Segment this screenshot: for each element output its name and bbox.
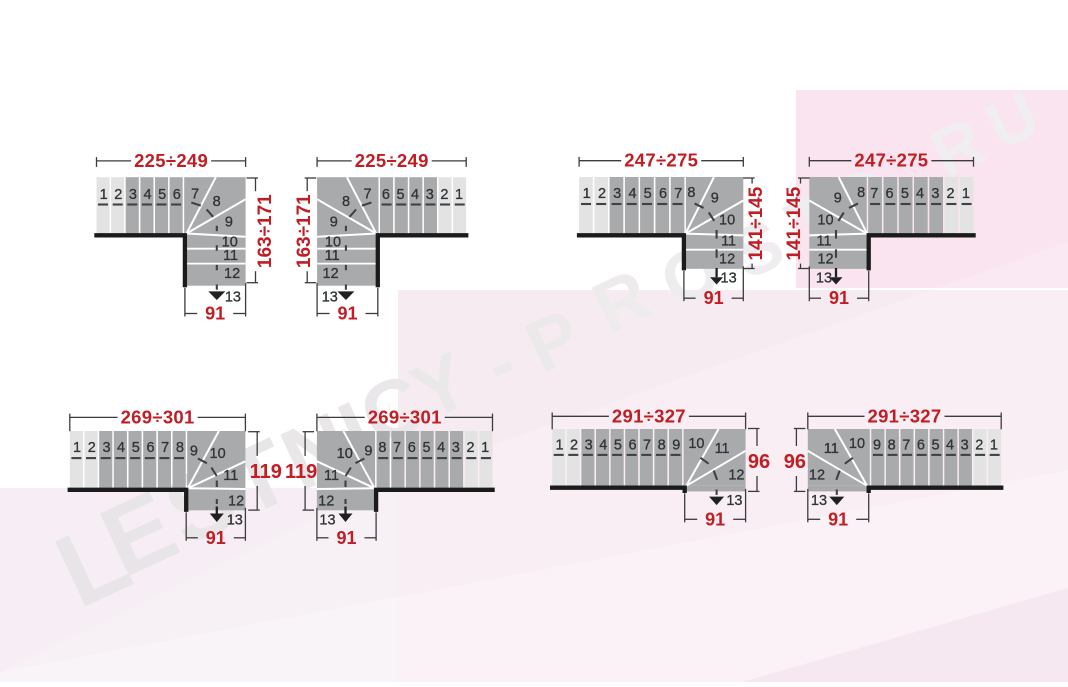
svg-text:6: 6 — [408, 440, 416, 456]
svg-text:12: 12 — [318, 493, 334, 509]
svg-text:8: 8 — [888, 438, 896, 454]
svg-text:4: 4 — [916, 186, 924, 202]
svg-text:7: 7 — [643, 438, 651, 454]
svg-text:7: 7 — [393, 440, 401, 456]
svg-text:6: 6 — [917, 438, 925, 454]
svg-text:13: 13 — [225, 290, 241, 306]
svg-text:12: 12 — [323, 266, 339, 282]
svg-text:3: 3 — [452, 440, 460, 456]
svg-text:12: 12 — [228, 493, 244, 509]
svg-text:2: 2 — [440, 187, 448, 203]
svg-text:141÷145: 141÷145 — [746, 186, 767, 260]
svg-text:225÷249: 225÷249 — [355, 150, 429, 171]
svg-text:91: 91 — [337, 304, 357, 324]
svg-text:6: 6 — [173, 187, 181, 203]
svg-text:1: 1 — [73, 440, 81, 456]
svg-text:9: 9 — [711, 191, 719, 207]
svg-text:10: 10 — [337, 446, 353, 462]
svg-text:7: 7 — [161, 440, 169, 456]
svg-text:11: 11 — [223, 468, 238, 484]
svg-text:4: 4 — [437, 440, 445, 456]
svg-text:269÷301: 269÷301 — [121, 406, 195, 427]
svg-text:5: 5 — [132, 440, 140, 456]
svg-text:13: 13 — [816, 271, 832, 287]
svg-text:247÷275: 247÷275 — [624, 150, 698, 171]
svg-text:1: 1 — [583, 186, 591, 202]
svg-text:12: 12 — [719, 252, 735, 268]
svg-text:6: 6 — [382, 187, 390, 203]
svg-text:91: 91 — [336, 528, 356, 548]
svg-text:13: 13 — [319, 513, 335, 529]
svg-text:1: 1 — [455, 187, 463, 203]
svg-text:4: 4 — [411, 187, 419, 203]
svg-text:5: 5 — [614, 438, 622, 454]
svg-text:9: 9 — [190, 443, 198, 459]
svg-text:13: 13 — [726, 493, 742, 509]
svg-text:11: 11 — [824, 441, 839, 457]
svg-text:7: 7 — [870, 186, 878, 202]
svg-text:9: 9 — [225, 215, 233, 231]
svg-text:7: 7 — [191, 186, 199, 202]
svg-text:10: 10 — [719, 213, 735, 229]
svg-text:163÷171: 163÷171 — [294, 194, 315, 268]
svg-text:119: 119 — [285, 461, 317, 483]
svg-text:91: 91 — [704, 288, 724, 308]
svg-text:163÷171: 163÷171 — [255, 194, 276, 268]
svg-text:247÷275: 247÷275 — [854, 150, 928, 171]
svg-text:5: 5 — [644, 186, 652, 202]
svg-text:1: 1 — [100, 187, 108, 203]
svg-text:11: 11 — [324, 468, 339, 484]
svg-text:1: 1 — [962, 186, 970, 202]
svg-text:4: 4 — [946, 438, 954, 454]
svg-text:9: 9 — [364, 443, 372, 459]
svg-text:11: 11 — [721, 233, 736, 249]
svg-text:91: 91 — [705, 509, 725, 529]
svg-text:2: 2 — [598, 186, 606, 202]
svg-text:96: 96 — [748, 451, 770, 473]
svg-text:3: 3 — [585, 438, 593, 454]
svg-text:4: 4 — [144, 187, 152, 203]
svg-text:96: 96 — [784, 451, 806, 473]
svg-text:2: 2 — [88, 440, 96, 456]
svg-text:291÷327: 291÷327 — [868, 405, 942, 426]
svg-text:12: 12 — [809, 468, 825, 484]
svg-text:5: 5 — [422, 440, 430, 456]
svg-text:10: 10 — [817, 213, 833, 229]
svg-text:91: 91 — [206, 528, 226, 548]
svg-text:13: 13 — [721, 271, 737, 287]
svg-text:9: 9 — [873, 438, 881, 454]
svg-text:291÷327: 291÷327 — [612, 405, 686, 426]
svg-text:13: 13 — [227, 513, 243, 529]
svg-text:2: 2 — [947, 186, 955, 202]
svg-text:119: 119 — [250, 461, 282, 483]
svg-text:141÷145: 141÷145 — [784, 186, 805, 260]
svg-text:3: 3 — [129, 187, 137, 203]
svg-text:6: 6 — [886, 186, 894, 202]
svg-text:10: 10 — [210, 446, 226, 462]
svg-text:2: 2 — [975, 438, 983, 454]
svg-text:3: 3 — [931, 186, 939, 202]
svg-text:8: 8 — [857, 185, 865, 201]
svg-text:9: 9 — [672, 438, 680, 454]
svg-text:9: 9 — [834, 191, 842, 207]
svg-text:8: 8 — [378, 440, 386, 456]
svg-text:8: 8 — [342, 194, 350, 210]
svg-text:6: 6 — [659, 186, 667, 202]
svg-text:1: 1 — [555, 438, 563, 454]
svg-text:91: 91 — [829, 288, 849, 308]
svg-text:13: 13 — [322, 290, 338, 306]
svg-text:9: 9 — [330, 215, 338, 231]
svg-text:7: 7 — [363, 186, 371, 202]
svg-text:12: 12 — [728, 468, 744, 484]
svg-text:4: 4 — [599, 438, 607, 454]
svg-text:2: 2 — [466, 440, 474, 456]
svg-text:7: 7 — [674, 186, 682, 202]
svg-text:1: 1 — [990, 438, 998, 454]
svg-text:12: 12 — [224, 266, 240, 282]
svg-text:225÷249: 225÷249 — [134, 150, 208, 171]
svg-text:8: 8 — [176, 440, 184, 456]
svg-text:11: 11 — [223, 248, 238, 264]
svg-text:12: 12 — [817, 252, 833, 268]
svg-text:4: 4 — [628, 186, 636, 202]
svg-text:269÷301: 269÷301 — [368, 406, 442, 427]
svg-text:11: 11 — [816, 233, 831, 249]
svg-text:5: 5 — [158, 187, 166, 203]
svg-text:8: 8 — [658, 438, 666, 454]
svg-text:6: 6 — [146, 440, 154, 456]
svg-text:5: 5 — [931, 438, 939, 454]
svg-text:3: 3 — [613, 186, 621, 202]
svg-text:3: 3 — [426, 187, 434, 203]
svg-text:6: 6 — [628, 438, 636, 454]
svg-text:8: 8 — [213, 194, 221, 210]
svg-text:1: 1 — [481, 440, 489, 456]
svg-text:11: 11 — [715, 441, 730, 457]
svg-text:10: 10 — [688, 436, 704, 452]
svg-text:91: 91 — [205, 304, 225, 324]
svg-text:8: 8 — [687, 185, 695, 201]
svg-text:3: 3 — [961, 438, 969, 454]
svg-text:3: 3 — [102, 440, 110, 456]
svg-text:2: 2 — [114, 187, 122, 203]
svg-text:10: 10 — [849, 436, 865, 452]
svg-text:5: 5 — [901, 186, 909, 202]
svg-text:4: 4 — [117, 440, 125, 456]
svg-text:13: 13 — [811, 493, 827, 509]
svg-text:91: 91 — [828, 509, 848, 529]
svg-text:11: 11 — [325, 248, 340, 264]
svg-text:5: 5 — [396, 187, 404, 203]
svg-text:2: 2 — [570, 438, 578, 454]
svg-text:7: 7 — [902, 438, 910, 454]
